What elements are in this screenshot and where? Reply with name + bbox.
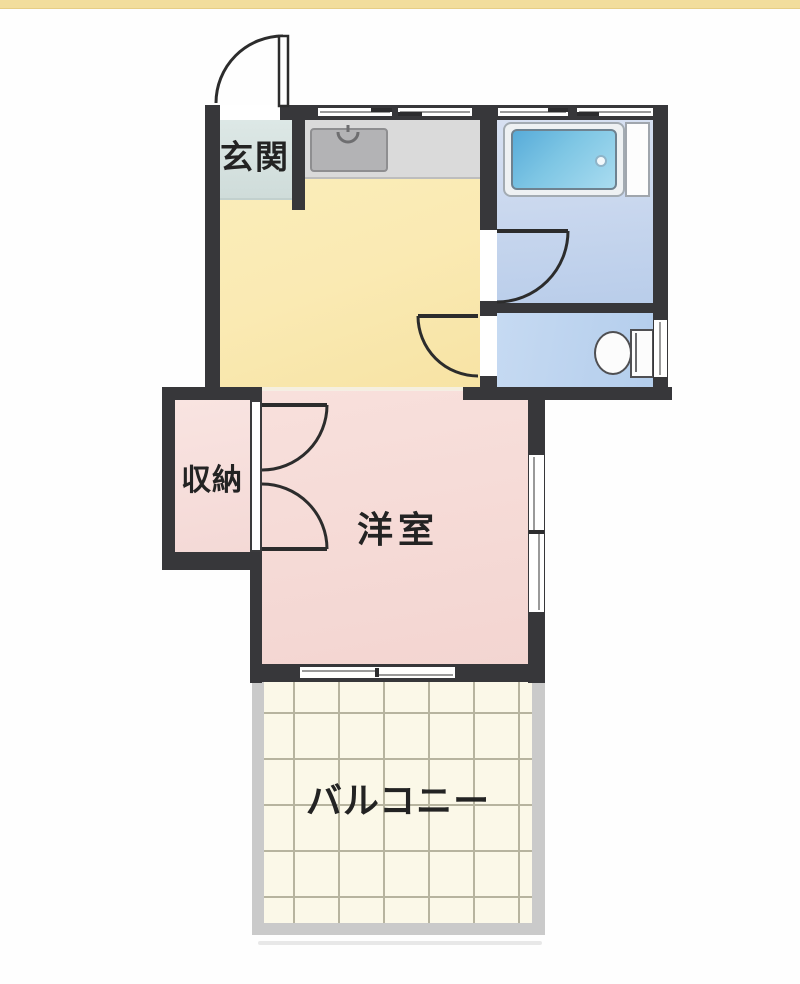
window-western-bottom-sash xyxy=(375,668,379,677)
window-western-bottom-line2 xyxy=(377,674,453,676)
western-room-label: 洋室 xyxy=(357,512,439,548)
closet-wall-top xyxy=(162,387,262,400)
window-bathroom-right-sash xyxy=(577,112,599,116)
bathtub-drain xyxy=(595,155,607,167)
entrance-door-leaf xyxy=(279,36,288,106)
closet-door-track xyxy=(250,400,262,552)
outer-wall-left xyxy=(205,105,220,400)
window-western-bottom-line1 xyxy=(302,670,377,672)
balcony-label: バルコニー xyxy=(306,783,490,819)
window-kitchen-right-sash xyxy=(398,112,422,116)
wall-kitchen-toilet-bottom xyxy=(463,387,672,400)
window-toilet-line xyxy=(659,322,661,375)
bath-vanity xyxy=(625,122,650,197)
entrance-opening xyxy=(220,105,280,120)
bathroom-door-opening xyxy=(480,230,497,301)
closet-wall-left xyxy=(162,387,175,570)
toilet-tank-line xyxy=(635,333,637,372)
top-accent-bar xyxy=(0,0,800,9)
window-kitchen-left-sash xyxy=(371,108,392,112)
kitchen-westernroom-boundary xyxy=(262,387,463,391)
balcony-shadow xyxy=(258,941,542,945)
window-western-right-line2 xyxy=(538,533,540,610)
toilet-bowl xyxy=(594,331,632,375)
closet-wall-bottom xyxy=(162,552,253,570)
toilet-door-opening xyxy=(480,316,497,376)
window-bathroom-left-sash xyxy=(548,108,568,112)
genkan-wall-stub xyxy=(292,120,305,210)
kitchen-sink xyxy=(310,128,388,172)
closet-label: 収納 xyxy=(181,466,243,496)
entrance-door-arc xyxy=(216,36,283,103)
window-western-right-sash xyxy=(529,530,544,534)
wall-bathroom-bottom xyxy=(480,303,668,313)
window-western-right-line1 xyxy=(533,457,535,533)
floorplan-image: 玄関 収納 洋室 バルコニー xyxy=(0,0,800,984)
genkan-label: 玄関 xyxy=(220,141,290,174)
toilet-tank xyxy=(630,329,654,378)
